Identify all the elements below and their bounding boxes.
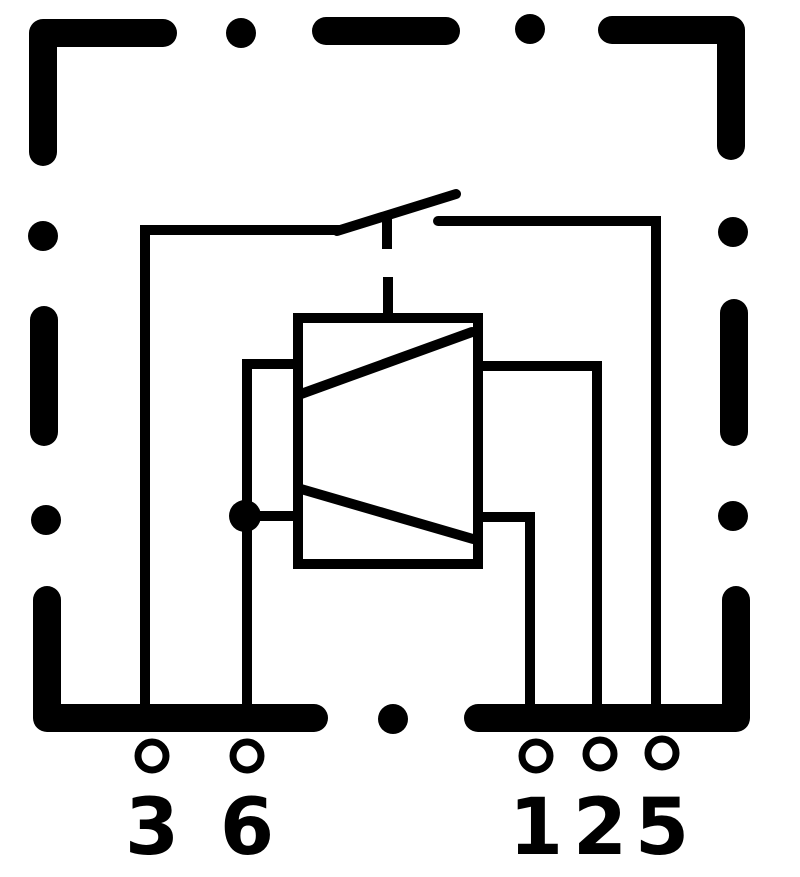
terminal-ring-1	[522, 742, 550, 770]
terminal-ring-5	[648, 739, 676, 767]
wire-junction-dot	[229, 500, 261, 532]
pin-label-3: 3	[125, 783, 179, 873]
coil-winding-diagonal-upper	[301, 332, 472, 394]
terminal-ring-6	[233, 742, 261, 770]
terminal-ring-3	[138, 742, 166, 770]
relay-schematic-page: 36125	[0, 0, 800, 877]
wire-coil-upper-left-to-terminal6	[247, 364, 299, 712]
border-dash-top-right-corner	[612, 30, 731, 146]
border-dot-left-2	[31, 505, 61, 535]
border-dot-right-1	[718, 217, 748, 247]
border-dot-right-2	[718, 501, 748, 531]
coil-winding-diagonal-lower	[301, 489, 473, 539]
border-dash-bottom-left-corner	[47, 600, 314, 718]
border-dot-left-1	[28, 221, 58, 251]
relay-circuit-diagram: 36125	[0, 0, 800, 877]
terminal-ring-2	[586, 740, 614, 768]
relay-coil-box	[298, 318, 478, 564]
border-dot-top-1	[226, 18, 256, 48]
border-dot-top-2	[515, 14, 545, 44]
pin-label-1: 1	[509, 783, 563, 873]
pin-label-2: 2	[573, 783, 627, 873]
border-dot-bottom	[378, 704, 408, 734]
border-dash-top-left-corner	[43, 33, 163, 152]
pin-label-5: 5	[635, 783, 689, 873]
pin-label-6: 6	[220, 783, 274, 873]
wire-switch-to-terminal5	[438, 221, 656, 712]
border-dash-bottom-right-corner	[478, 600, 736, 718]
wire-coil-lower-right-to-terminal1	[477, 517, 530, 712]
wire-coil-upper-right-to-terminal2	[477, 366, 597, 712]
